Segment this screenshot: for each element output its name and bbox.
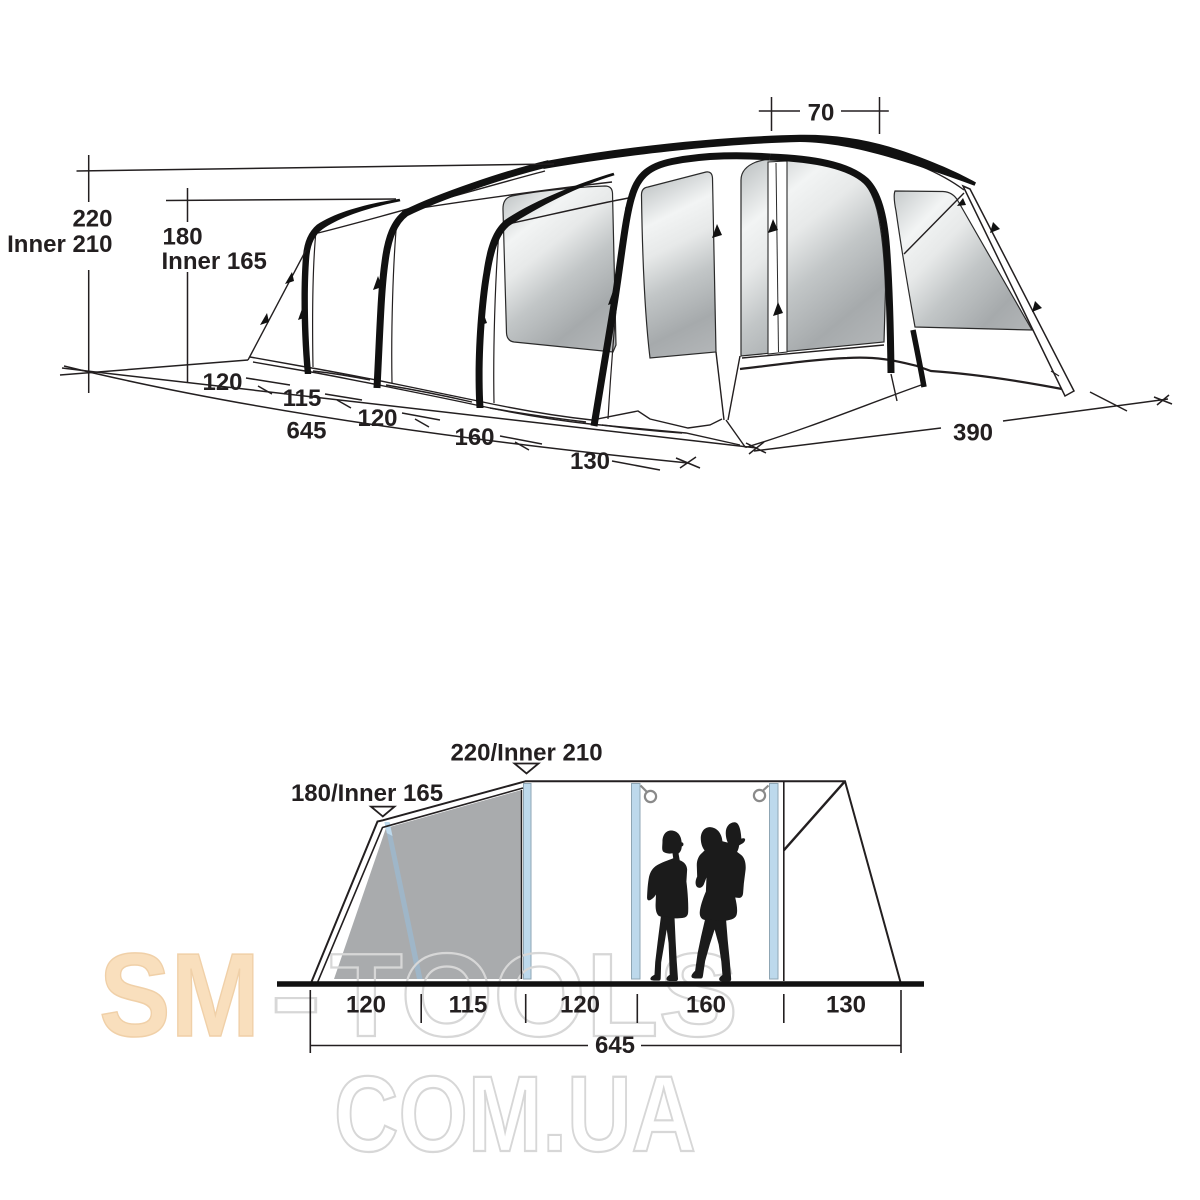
svg-text:-: -: [270, 929, 322, 1062]
svg-text:120: 120: [357, 405, 397, 432]
svg-text:70: 70: [808, 100, 835, 127]
svg-text:180/Inner 165: 180/Inner 165: [291, 780, 443, 807]
svg-text:115: 115: [449, 992, 488, 1019]
svg-text:130: 130: [826, 992, 866, 1019]
svg-text:120: 120: [346, 992, 386, 1019]
svg-text:SM: SM: [99, 929, 260, 1062]
svg-text:220/Inner 210: 220/Inner 210: [450, 740, 602, 767]
svg-text:130: 130: [570, 448, 610, 475]
svg-text:Inner 210: Inner 210: [7, 231, 112, 258]
svg-text:TOOLS: TOOLS: [330, 929, 738, 1062]
svg-text:645: 645: [595, 1032, 635, 1059]
svg-text:Inner 165: Inner 165: [162, 248, 267, 275]
svg-text:COM.UA: COM.UA: [334, 1053, 696, 1174]
svg-text:390: 390: [953, 420, 993, 447]
svg-text:180: 180: [163, 224, 203, 251]
svg-text:160: 160: [686, 992, 726, 1019]
svg-text:120: 120: [560, 992, 600, 1019]
svg-text:220: 220: [72, 206, 112, 233]
svg-text:120: 120: [202, 369, 242, 396]
svg-text:645: 645: [286, 418, 326, 445]
svg-text:160: 160: [454, 424, 494, 451]
svg-text:115: 115: [283, 385, 322, 412]
